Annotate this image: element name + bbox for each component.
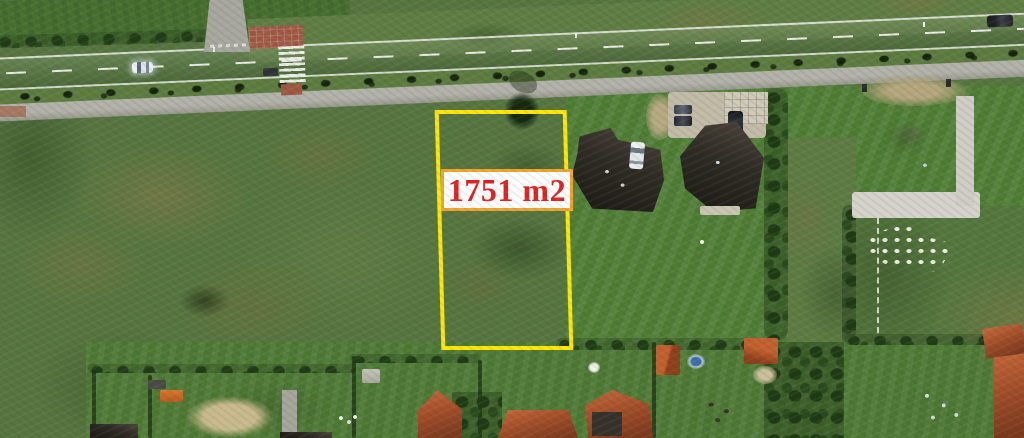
red-roof-partial	[982, 323, 1024, 358]
gate-post	[862, 84, 867, 92]
sand-patch	[186, 396, 274, 438]
white-fence-line	[877, 208, 879, 343]
white-car	[132, 62, 153, 74]
parked-car-gray	[674, 105, 692, 114]
pool	[687, 354, 705, 369]
dark-shed	[148, 380, 166, 389]
red-roof-house	[498, 410, 578, 438]
red-paving-ramp	[281, 84, 302, 96]
solar-panel-section	[592, 412, 622, 436]
red-garage	[744, 338, 778, 364]
ball-on-lawn	[700, 240, 704, 244]
dark-roof-partial-left	[90, 424, 138, 438]
hedge-between-lots	[764, 88, 788, 340]
sand-pile-right	[753, 366, 777, 384]
hedge-gardens-2	[350, 354, 480, 363]
road-post	[213, 47, 215, 52]
aerial-photo: 1751 m2	[0, 0, 1024, 438]
red-paving-left-end	[0, 106, 26, 117]
gate-post	[946, 79, 951, 87]
plot-area-label: 1751 m2	[441, 169, 573, 211]
hedge-lot-right	[842, 205, 856, 345]
dark-car	[263, 68, 278, 77]
gray-shed	[362, 369, 380, 383]
dark-car-right	[987, 14, 1013, 27]
plot-area-text: 1751 m2	[448, 174, 566, 206]
dark-roof-partial-center	[280, 432, 332, 438]
driveway-bottom	[282, 390, 297, 438]
parked-car-dark	[674, 116, 692, 126]
red-roof-house-edge	[994, 350, 1024, 438]
orange-shed	[160, 390, 183, 402]
terrace-house-2	[700, 206, 740, 215]
red-garden-shed	[656, 345, 680, 375]
road-post	[575, 33, 577, 38]
road-post	[923, 22, 925, 27]
white-dome-tent	[588, 362, 600, 373]
hedge-gardens-1	[88, 364, 356, 373]
garden-furniture	[336, 414, 360, 428]
plot-boundary-outline	[435, 110, 574, 350]
pedestrian-crossing	[278, 45, 306, 83]
white-car-at-house	[629, 141, 645, 169]
rough-lot-right	[856, 206, 1024, 346]
